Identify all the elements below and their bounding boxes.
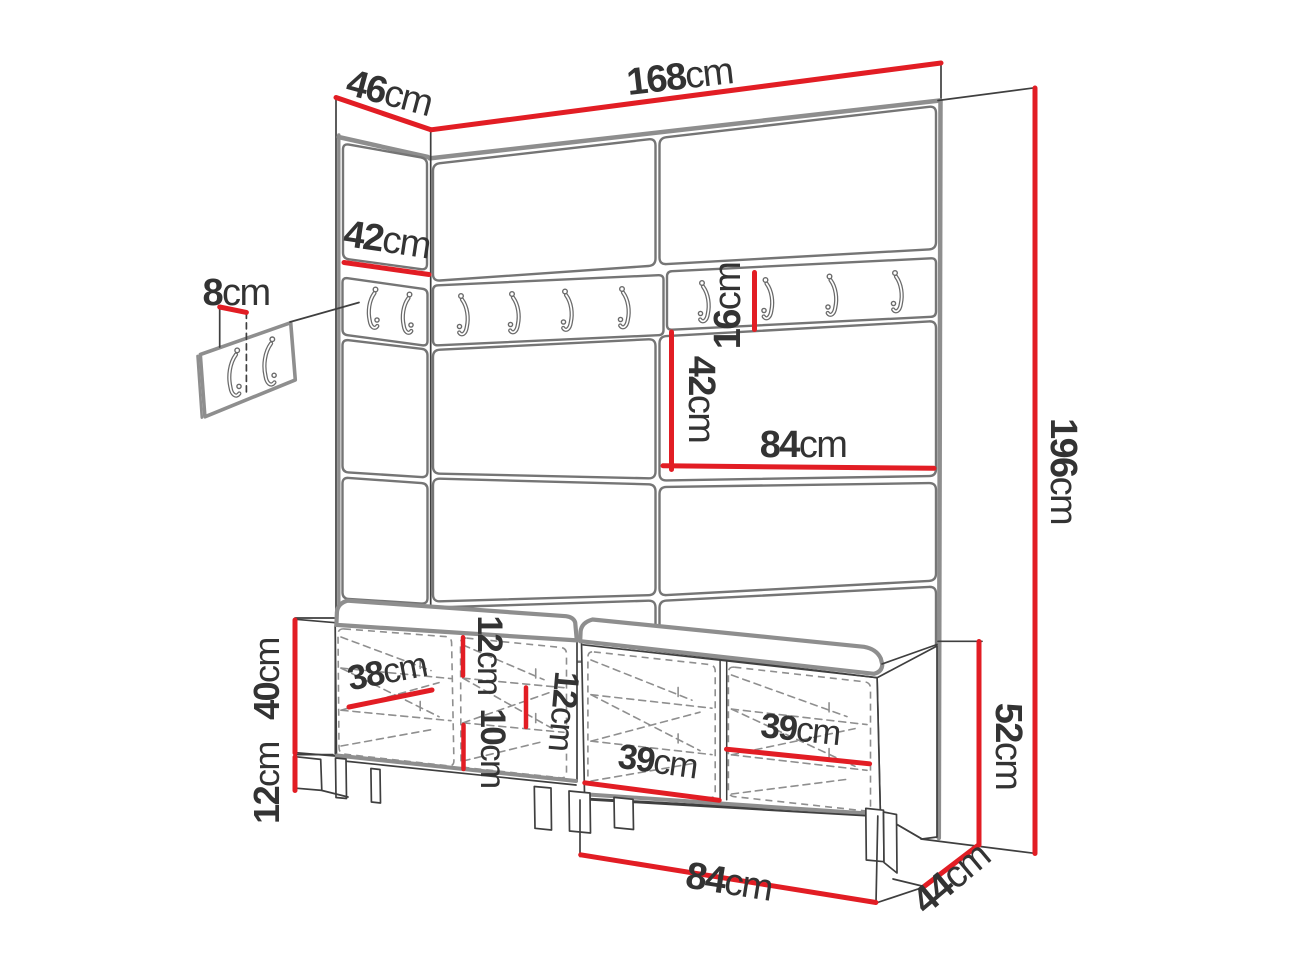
svg-text:12cm: 12cm: [541, 670, 587, 752]
svg-text:196cm: 196cm: [1042, 418, 1084, 524]
svg-text:40cm: 40cm: [246, 638, 287, 720]
svg-text:84cm: 84cm: [760, 424, 847, 466]
svg-text:52cm: 52cm: [987, 703, 1029, 790]
svg-text:16cm: 16cm: [707, 263, 749, 350]
svg-text:12cm: 12cm: [470, 615, 509, 694]
svg-text:42cm: 42cm: [680, 356, 722, 443]
svg-text:10cm: 10cm: [473, 708, 512, 787]
svg-text:39cm: 39cm: [759, 706, 842, 753]
svg-text:12cm: 12cm: [246, 742, 287, 824]
svg-text:8cm: 8cm: [202, 272, 269, 314]
